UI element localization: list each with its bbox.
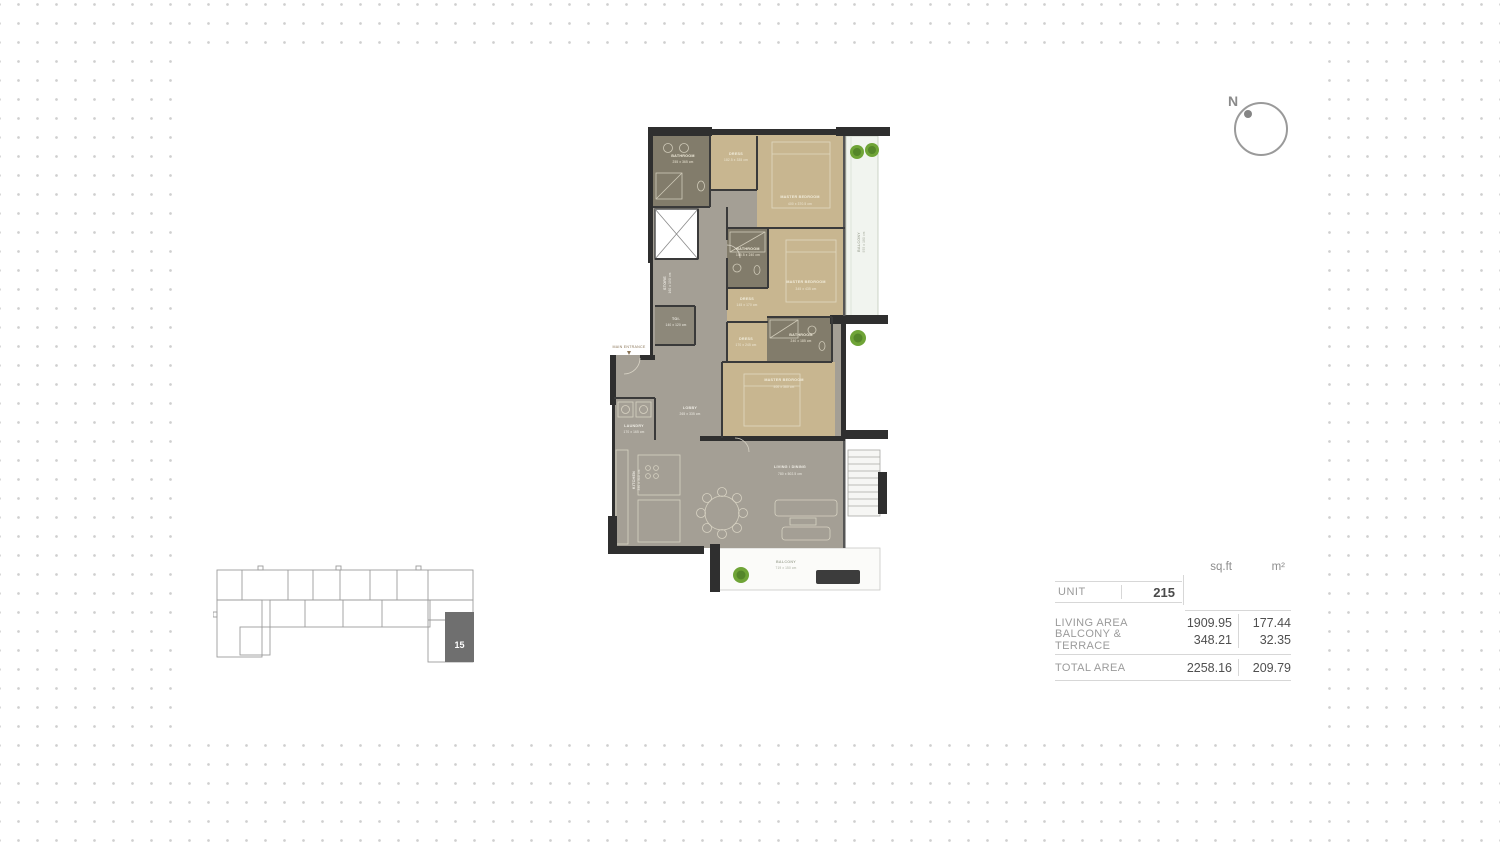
label-dress-top-dims: 182.5 x 335 cm xyxy=(724,158,748,162)
label-master-mid-name: MASTER BEDROOM xyxy=(786,280,825,284)
total-area-block: TOTAL AREA 2258.16 209.79 xyxy=(1055,654,1291,681)
north-label: N xyxy=(1228,93,1238,109)
label-dress-mid-name: DRESS xyxy=(740,297,754,301)
highlighted-unit-number: 15 xyxy=(454,640,464,650)
label-living-name: LIVING / DINING xyxy=(774,465,806,469)
total-area-label: TOTAL AREA xyxy=(1055,662,1179,674)
total-area-m2: 209.79 xyxy=(1238,659,1291,676)
label-master-top-name: MASTER BEDROOM xyxy=(780,195,819,199)
label-dress-mid-dims: 145 x 170 cm xyxy=(737,303,758,307)
room-master-bedroom-lower xyxy=(722,362,835,438)
living-area-sqft: 1909.95 xyxy=(1179,616,1232,630)
compass-dot-icon xyxy=(1244,110,1252,118)
compass-circle-icon xyxy=(1234,102,1288,156)
label-balcony-bottom-dims: 719 x 150 cm xyxy=(776,566,797,570)
label-dress-lower-dims: 170 x 245 cm xyxy=(736,343,757,347)
label-toilet-dims: 140 x 120 cm xyxy=(666,323,687,327)
table-units-header: sq.ft m² xyxy=(1055,561,1291,579)
label-laundry-dims: 170 x 165 cm xyxy=(624,430,645,434)
svg-text:160 x 190 cm: 160 x 190 cm xyxy=(668,272,672,293)
total-area-sqft: 2258.16 xyxy=(1179,661,1232,675)
exterior-stairs xyxy=(848,450,880,516)
label-dress-lower-name: DRESS xyxy=(739,337,753,341)
label-master-top-dims: 400 x 370.5 cm xyxy=(788,202,812,206)
label-lobby-dims: 265 x 335 cm xyxy=(680,412,701,416)
label-bathroom-lower-dims: 240 x 185 cm xyxy=(791,339,812,343)
total-area-row: TOTAL AREA 2258.16 209.79 xyxy=(1055,659,1291,676)
balcony-terrace-sqft: 348.21 xyxy=(1179,633,1232,647)
floor-plan: BATHROOM 255 x 365 cm DRESS 182.5 x 335 … xyxy=(605,122,895,594)
header-sqft: sq.ft xyxy=(1210,561,1232,573)
label-kitchen: KITCHEN 390 x 310 cm xyxy=(632,469,641,490)
highlighted-unit xyxy=(445,612,474,662)
entrance-arrow-icon xyxy=(627,351,631,355)
living-area-m2: 177.44 xyxy=(1238,614,1291,631)
balcony-bench xyxy=(816,570,860,584)
balcony-terrace-row: BALCONY & TERRACE 348.21 32.35 xyxy=(1055,631,1291,648)
right-balcony-area xyxy=(846,136,878,316)
label-master-mid-dims: 345 x 435 cm xyxy=(796,287,817,291)
label-laundry-name: LAUNDRY xyxy=(624,424,644,428)
label-dress-top-name: DRESS xyxy=(729,152,743,156)
area-rows: LIVING AREA 1909.95 177.44 BALCONY & TER… xyxy=(1055,610,1291,648)
room-bathroom-mid xyxy=(727,229,768,288)
svg-text:390 x 310 cm: 390 x 310 cm xyxy=(637,469,641,490)
svg-text:955 x 180 cm: 955 x 180 cm xyxy=(862,231,866,252)
label-living-dims: 780 x 502.5 cm xyxy=(778,472,802,476)
header-m2: m² xyxy=(1272,561,1285,573)
label-bathroom-mid-dims: 155.5 x 240 cm xyxy=(736,253,760,257)
unit-number: 215 xyxy=(1153,585,1179,600)
label-master-lower-name: MASTER BEDROOM xyxy=(764,378,803,382)
label-bathroom-top-dims: 255 x 365 cm xyxy=(673,160,694,164)
building-key-plan: 15 xyxy=(213,565,478,667)
svg-text:BALCONY: BALCONY xyxy=(857,232,861,252)
label-bathroom-lower-name: BATHROOM xyxy=(789,333,812,337)
label-balcony-right: BALCONY 955 x 180 cm xyxy=(857,231,866,252)
compass: N xyxy=(1222,92,1300,162)
unit-info-table: sq.ft m² UNIT 215 LIVING AREA 1909.95 17… xyxy=(1055,561,1291,681)
unit-label: UNIT xyxy=(1058,586,1086,598)
label-lobby-name: LOBBY xyxy=(683,406,697,410)
room-master-bedroom-top xyxy=(757,131,845,228)
label-balcony-bottom-name: BALCONY xyxy=(776,560,796,564)
label-bathroom-top-name: BATHROOM xyxy=(671,154,694,158)
label-toilet-name: TOI. xyxy=(672,317,680,321)
svg-text:STORE: STORE xyxy=(663,276,667,290)
balcony-terrace-m2: 32.35 xyxy=(1238,631,1291,648)
label-master-lower-dims: 400 x 360 cm xyxy=(774,385,795,389)
key-plan-outline xyxy=(213,566,473,662)
unit-number-row: UNIT 215 xyxy=(1055,581,1182,603)
balcony-terrace-label: BALCONY & TERRACE xyxy=(1055,628,1179,652)
room-master-bedroom-mid xyxy=(768,229,845,316)
main-entrance-label: MAIN ENTRANCE xyxy=(612,345,645,349)
svg-text:KITCHEN: KITCHEN xyxy=(632,471,636,489)
label-bathroom-mid-name: BATHROOM xyxy=(736,247,759,251)
room-bathroom-top xyxy=(653,131,710,207)
